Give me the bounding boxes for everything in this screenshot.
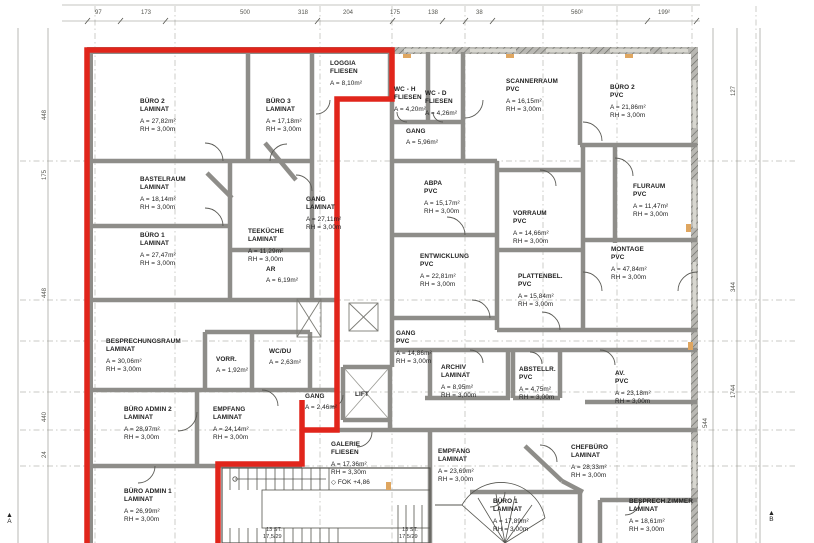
- floorplan-drawing: [0, 0, 814, 543]
- floorplan-sheet: BÜRO 2LAMINATA = 27,82m²RH = 3,00mBÜRO 3…: [0, 0, 814, 543]
